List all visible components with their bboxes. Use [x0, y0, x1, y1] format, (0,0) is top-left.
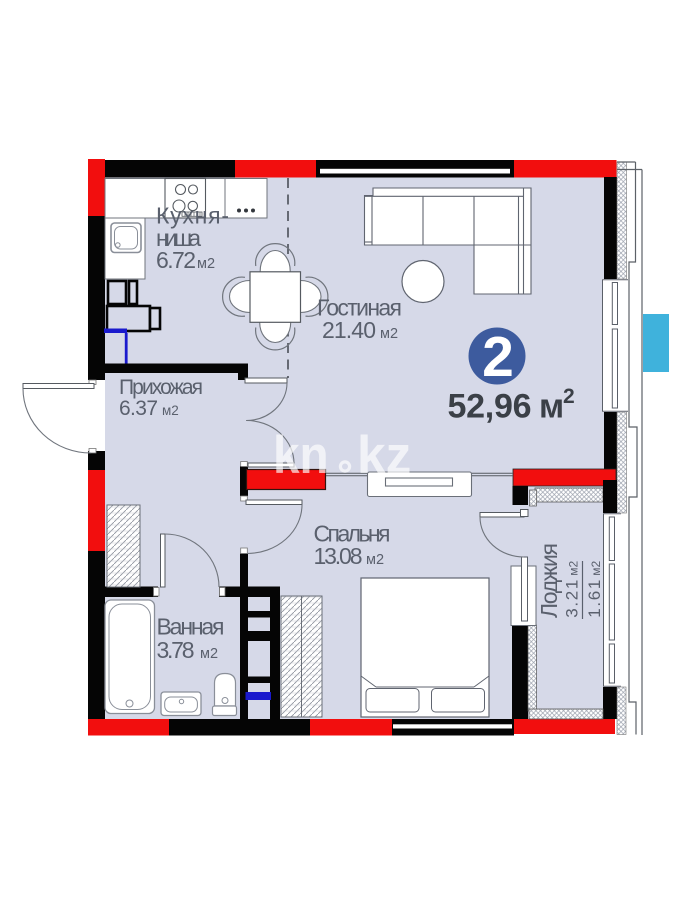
svg-text:2: 2 — [482, 325, 514, 389]
svg-text:3.21: 3.21 — [563, 580, 582, 618]
svg-text:13.08: 13.08 — [314, 543, 363, 569]
svg-text:м2: м2 — [567, 560, 581, 575]
svg-text:6.72: 6.72 — [156, 247, 196, 273]
svg-text:Прихожая: Прихожая — [119, 376, 203, 399]
svg-text:м2: м2 — [200, 646, 218, 662]
svg-text:м: м — [539, 388, 564, 426]
svg-text:м2: м2 — [162, 403, 179, 418]
svg-text:1.61: 1.61 — [585, 580, 604, 618]
svg-text:м2: м2 — [380, 326, 398, 342]
svg-text:21.40: 21.40 — [322, 317, 376, 343]
svg-text:52,96: 52,96 — [448, 388, 532, 426]
svg-text:Лоджия: Лоджия — [536, 543, 562, 618]
svg-text:м2: м2 — [197, 256, 215, 272]
svg-text:м2: м2 — [366, 552, 384, 568]
svg-text:kn: kn — [273, 425, 329, 485]
svg-text:3.78: 3.78 — [157, 637, 195, 663]
svg-text:м2: м2 — [589, 560, 603, 575]
svg-text:2: 2 — [563, 385, 575, 408]
svg-text:Ванная: Ванная — [157, 614, 225, 640]
svg-text:kz: kz — [357, 426, 411, 485]
svg-text:6.37: 6.37 — [119, 397, 158, 420]
